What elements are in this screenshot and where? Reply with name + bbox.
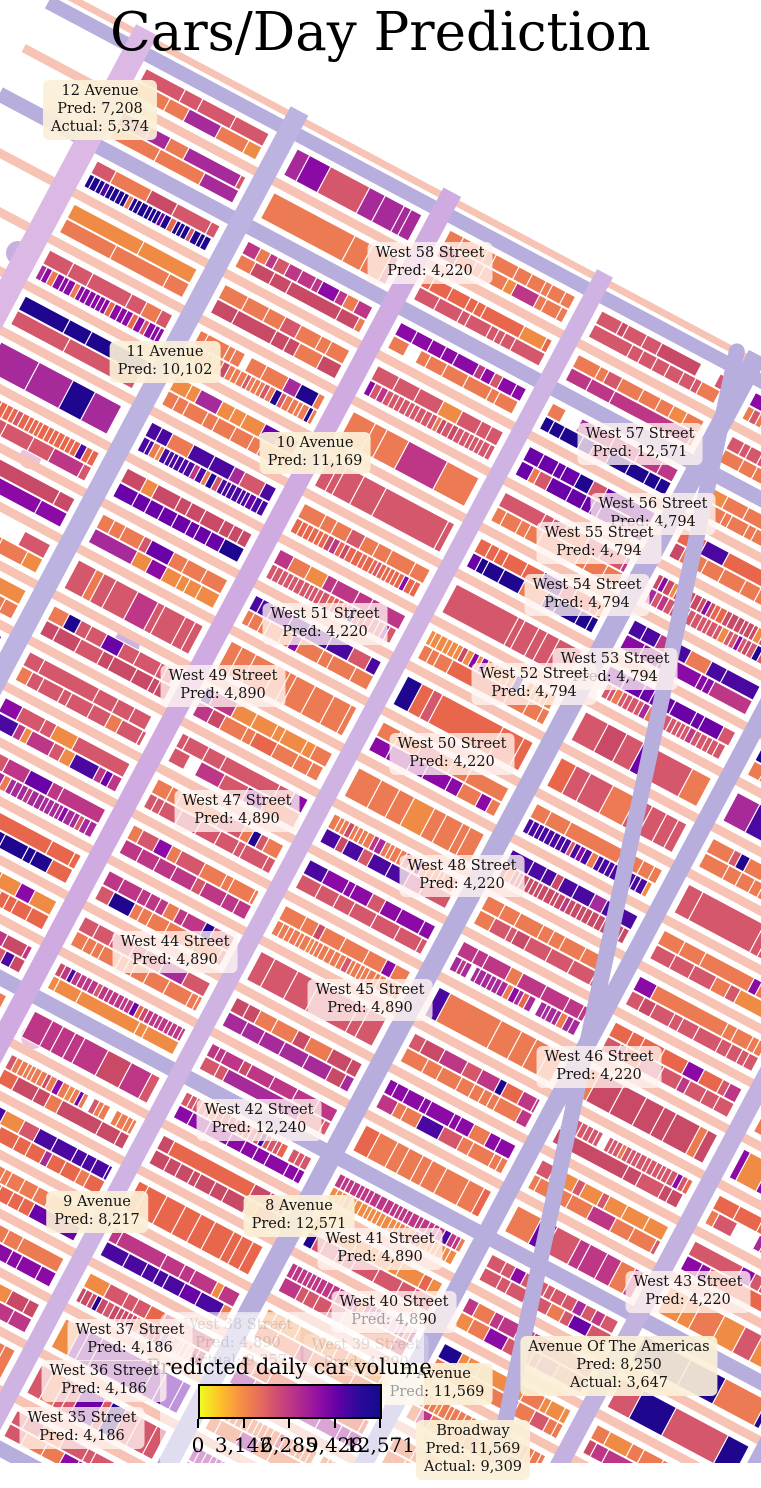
label-street-name: West 45 Street (316, 982, 425, 1000)
label-street-name: West 56 Street (599, 496, 708, 514)
legend-tick-mark (334, 1419, 336, 1428)
map-label-west-47-street: West 47 StreetPred: 4,890 (175, 790, 300, 832)
label-actual-value: Actual: 3,647 (528, 1375, 709, 1393)
label-street-name: West 41 Street (326, 1231, 435, 1249)
map-label-12-avenue: 12 AvenuePred: 7,208Actual: 5,374 (43, 80, 157, 140)
label-predicted-value: Pred: 8,217 (54, 1212, 140, 1230)
label-street-name: 8 Avenue (252, 1198, 347, 1216)
label-predicted-value: Pred: 7,208 (51, 101, 149, 119)
map-label-west-48-street: West 48 StreetPred: 4,220 (400, 855, 525, 897)
map-label-west-43-street: West 43 StreetPred: 4,220 (626, 1271, 751, 1313)
page-title: Cars/Day Prediction (0, 2, 761, 63)
label-street-name: West 47 Street (183, 793, 292, 811)
map-label-west-51-street: West 51 StreetPred: 4,220 (263, 603, 388, 645)
label-predicted-value: Pred: 11,569 (424, 1441, 522, 1459)
map-label-11-avenue: 11 AvenuePred: 10,102 (110, 341, 221, 383)
label-predicted-value: Pred: 4,890 (121, 952, 230, 970)
label-actual-value: Actual: 5,374 (51, 119, 149, 137)
label-predicted-value: Pred: 4,220 (634, 1292, 743, 1310)
map-label-west-49-street: West 49 StreetPred: 4,890 (161, 665, 286, 707)
map-label-9-avenue: 9 AvenuePred: 8,217 (46, 1191, 148, 1233)
label-street-name: West 37 Street (76, 1322, 185, 1340)
map-label-west-50-street: West 50 StreetPred: 4,220 (390, 733, 515, 775)
label-street-name: West 42 Street (205, 1102, 314, 1120)
label-predicted-value: Pred: 4,220 (271, 624, 380, 642)
map-label-broadway: BroadwayPred: 11,569Actual: 9,309 (416, 1420, 530, 1480)
label-street-name: West 36 Street (50, 1363, 159, 1381)
label-predicted-value: Pred: 10,102 (118, 362, 213, 380)
map-label-west-37-street: West 37 StreetPred: 4,186 (68, 1319, 193, 1361)
legend-tick-mark (288, 1419, 290, 1428)
label-street-name: 9 Avenue (54, 1194, 140, 1212)
label-street-name: 10 Avenue (268, 435, 363, 453)
label-actual-value: Actual: 9,309 (424, 1459, 522, 1477)
label-predicted-value: Pred: 11,169 (268, 453, 363, 471)
legend-tick-label: 0 (192, 1433, 205, 1457)
legend-tick-mark (243, 1419, 245, 1428)
label-street-name: 12 Avenue (51, 83, 149, 101)
map-label-west-36-street: West 36 StreetPred: 4,186 (42, 1360, 167, 1402)
label-predicted-value: Pred: 12,240 (205, 1120, 314, 1138)
label-street-name: West 44 Street (121, 934, 230, 952)
label-predicted-value: Pred: 12,571 (586, 444, 695, 462)
map-label-west-57-street: West 57 StreetPred: 12,571 (578, 423, 703, 465)
label-predicted-value: Pred: 4,890 (169, 686, 278, 704)
map-label-west-54-street: West 54 StreetPred: 4,794 (525, 574, 650, 616)
label-predicted-value: Pred: 4,794 (545, 543, 654, 561)
legend-tick-mark (379, 1419, 381, 1428)
map-label-10-avenue: 10 AvenuePred: 11,169 (260, 432, 371, 474)
label-street-name: West 54 Street (533, 577, 642, 595)
label-street-name: West 57 Street (586, 426, 695, 444)
label-predicted-value: Pred: 4,794 (480, 684, 589, 702)
map-label-west-41-street: West 41 StreetPred: 4,890 (318, 1228, 443, 1270)
legend-tick-mark (197, 1419, 199, 1428)
label-street-name: West 49 Street (169, 668, 278, 686)
map-label-west-52-street: West 52 StreetPred: 4,794 (472, 663, 597, 705)
label-street-name: West 51 Street (271, 606, 380, 624)
label-predicted-value: Pred: 4,794 (533, 595, 642, 613)
label-predicted-value: Pred: 4,220 (398, 754, 507, 772)
label-predicted-value: Pred: 4,890 (316, 1000, 425, 1018)
label-predicted-value: Pred: 4,186 (28, 1428, 137, 1446)
map-label-west-45-street: West 45 StreetPred: 4,890 (308, 979, 433, 1021)
legend-tick-label: 12,571 (345, 1433, 415, 1457)
label-street-name: West 55 Street (545, 525, 654, 543)
label-street-name: West 35 Street (28, 1410, 137, 1428)
label-street-name: West 46 Street (545, 1049, 654, 1067)
label-street-name: Broadway (424, 1423, 522, 1441)
map-label-west-35-street: West 35 StreetPred: 4,186 (20, 1407, 145, 1449)
label-street-name: West 40 Street (340, 1294, 449, 1312)
figure: Cars/Day Prediction 12 AvenuePred: 7,208… (0, 0, 761, 1488)
label-street-name: 11 Avenue (118, 344, 213, 362)
map-label-west-58-street: West 58 StreetPred: 4,220 (368, 242, 493, 284)
label-street-name: Avenue Of The Americas (528, 1339, 709, 1357)
map-label-west-46-street: West 46 StreetPred: 4,220 (537, 1046, 662, 1088)
label-predicted-value: Pred: 4,220 (376, 263, 485, 281)
label-street-name: West 58 Street (376, 245, 485, 263)
map-label-west-42-street: West 42 StreetPred: 12,240 (197, 1099, 322, 1141)
label-street-name: West 48 Street (408, 858, 517, 876)
map-label-west-44-street: West 44 StreetPred: 4,890 (113, 931, 238, 973)
label-predicted-value: Pred: 8,250 (528, 1357, 709, 1375)
label-predicted-value: Pred: 4,186 (76, 1340, 185, 1358)
map-label-avenue-of-the-americas: Avenue Of The AmericasPred: 8,250Actual:… (520, 1336, 717, 1396)
label-predicted-value: Pred: 4,220 (545, 1067, 654, 1085)
label-street-name: West 50 Street (398, 736, 507, 754)
label-street-name: West 43 Street (634, 1274, 743, 1292)
label-predicted-value: Pred: 4,186 (50, 1381, 159, 1399)
label-predicted-value: Pred: 4,220 (408, 876, 517, 894)
label-street-name: West 52 Street (480, 666, 589, 684)
map-label-west-55-street: West 55 StreetPred: 4,794 (537, 522, 662, 564)
legend-colorbar (198, 1384, 382, 1419)
label-predicted-value: Pred: 4,890 (326, 1249, 435, 1267)
label-predicted-value: Pred: 4,890 (183, 811, 292, 829)
